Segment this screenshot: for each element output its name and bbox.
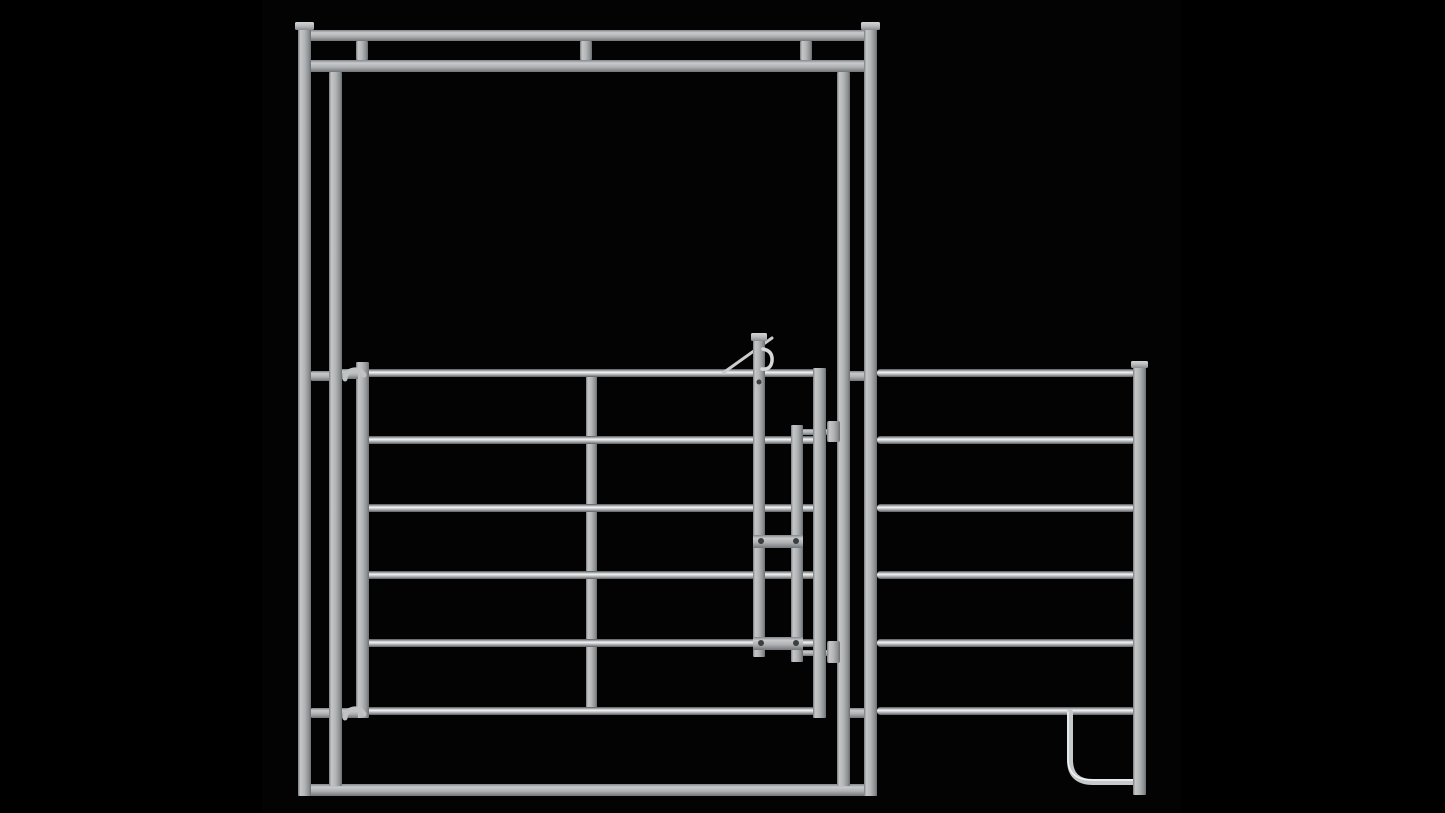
panel-rail-2 [877,436,1135,444]
header-spacer-middle [580,41,592,60]
panel-end-post-cap [1131,361,1148,368]
left-frame-connector-upper [311,371,330,381]
panel-end-post [1133,364,1146,795]
render-backdrop [262,0,1181,813]
gate-hinge-stile [356,362,369,718]
gate-rail-4 [363,571,818,579]
gate-structure-group [262,0,1181,813]
gate-render-svg [0,0,1445,813]
header-lower-rail [300,60,877,72]
frame-bottom-rail [300,784,877,796]
frame-outer-left-post [298,28,311,796]
frame-outer-left-post-cap [295,22,314,30]
panel-rail-5 [877,639,1135,647]
gate-rail-1 [363,369,818,377]
header-top-rail [300,30,877,41]
gate-center-brace [586,371,597,711]
frame-outer-right-post [864,28,877,796]
gate-latch-stile [813,368,826,718]
gate-latch-head [751,333,767,341]
left-frame-connector-lower [311,708,330,718]
gate-rail-2 [363,436,818,444]
gate-rail-3 [363,504,818,512]
frame-inner-left-post [329,72,342,786]
latch-keeper-lower [827,641,840,663]
panel-rail-4 [877,571,1135,579]
panel-rail-3 [877,504,1135,512]
latch-bracket-bolt-2 [793,538,799,544]
right-frame-connector-upper [849,371,865,381]
latch-bracket-bolt-4 [793,640,799,646]
frame-outer-right-post-cap [861,22,880,30]
product-image [0,0,1445,813]
header-spacer-left [356,41,368,60]
panel-rail-1 [877,369,1135,377]
gate-rail-5 [363,639,818,647]
header-spacer-right [800,41,812,60]
panel-rail-6 [877,707,1135,715]
right-frame-connector-lower [849,708,865,718]
latch-bracket-bolt-3 [758,640,764,646]
latch-rod-bolt [757,380,762,385]
latch-keeper-upper [827,421,840,442]
latch-bracket-bolt-1 [758,538,764,544]
gate-rail-6 [363,707,818,715]
